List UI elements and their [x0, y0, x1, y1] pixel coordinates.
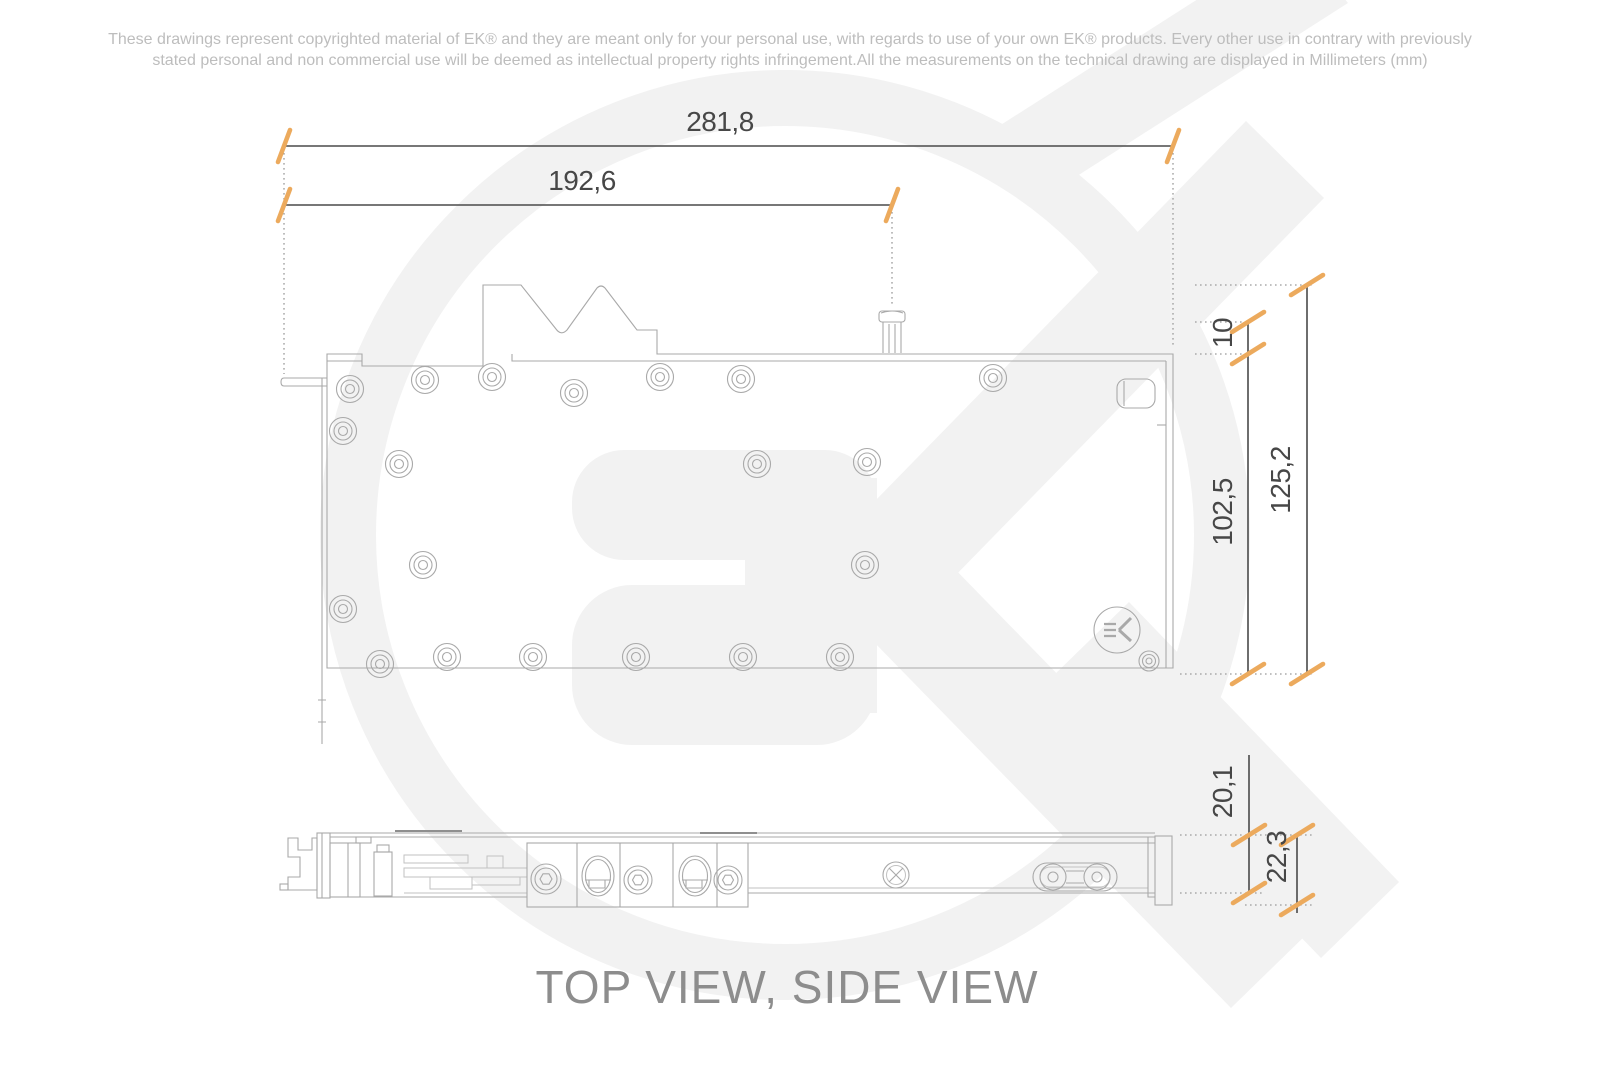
- screw-icon: [390, 455, 408, 473]
- dim-label-fill-port-height: 10: [1207, 318, 1238, 348]
- screw-icon: [524, 648, 542, 666]
- ek-watermark: [348, 0, 1399, 1008]
- screw-icon: [570, 389, 579, 398]
- dim-label-overall-width: 125,2: [1265, 446, 1296, 514]
- screw-icon: [443, 653, 452, 662]
- fill-port-plug: [879, 311, 905, 353]
- dim-label-block-thickness: 20,1: [1207, 766, 1238, 819]
- screw-icon: [737, 375, 746, 384]
- io-bracket-edge: [281, 378, 327, 744]
- screw-icon: [858, 453, 876, 471]
- disclaimer-line-1: These drawings represent copyrighted mat…: [108, 31, 1472, 48]
- dimension-length-to-fill-port: 192,6: [278, 165, 898, 221]
- disclaimer-line-2: stated personal and non commercial use w…: [152, 52, 1427, 69]
- screw-icon: [732, 370, 750, 388]
- screw-icon: [438, 648, 456, 666]
- screw-icon: [529, 653, 538, 662]
- screw-icon: [651, 368, 669, 386]
- screw-icon: [656, 373, 665, 382]
- screw-icon: [419, 561, 428, 570]
- dim-label-overall-length: 281,8: [686, 106, 754, 137]
- screw-icon: [414, 556, 432, 574]
- phillips-screw: [883, 862, 909, 888]
- dim-label-length-to-fill-port: 192,6: [548, 165, 616, 196]
- dimension-overall-width: 125,2: [1265, 275, 1323, 684]
- pci-bracket: [280, 833, 330, 898]
- screw-icon: [863, 458, 872, 467]
- screw-icon: [488, 373, 497, 382]
- page-title: TOP VIEW, SIDE VIEW: [536, 961, 1039, 1013]
- dim-label-overall-thickness: 22,3: [1261, 831, 1292, 884]
- screw-icon: [421, 376, 430, 385]
- drawing-canvas: These drawings represent copyrighted mat…: [0, 0, 1600, 1067]
- screw-icon: [565, 384, 583, 402]
- technical-drawing-page: These drawings represent copyrighted mat…: [0, 0, 1600, 1067]
- screw-icon: [395, 460, 404, 469]
- dim-label-block-body-width: 102,5: [1207, 478, 1238, 546]
- screw-icon: [416, 371, 434, 389]
- screw-icon: [483, 368, 501, 386]
